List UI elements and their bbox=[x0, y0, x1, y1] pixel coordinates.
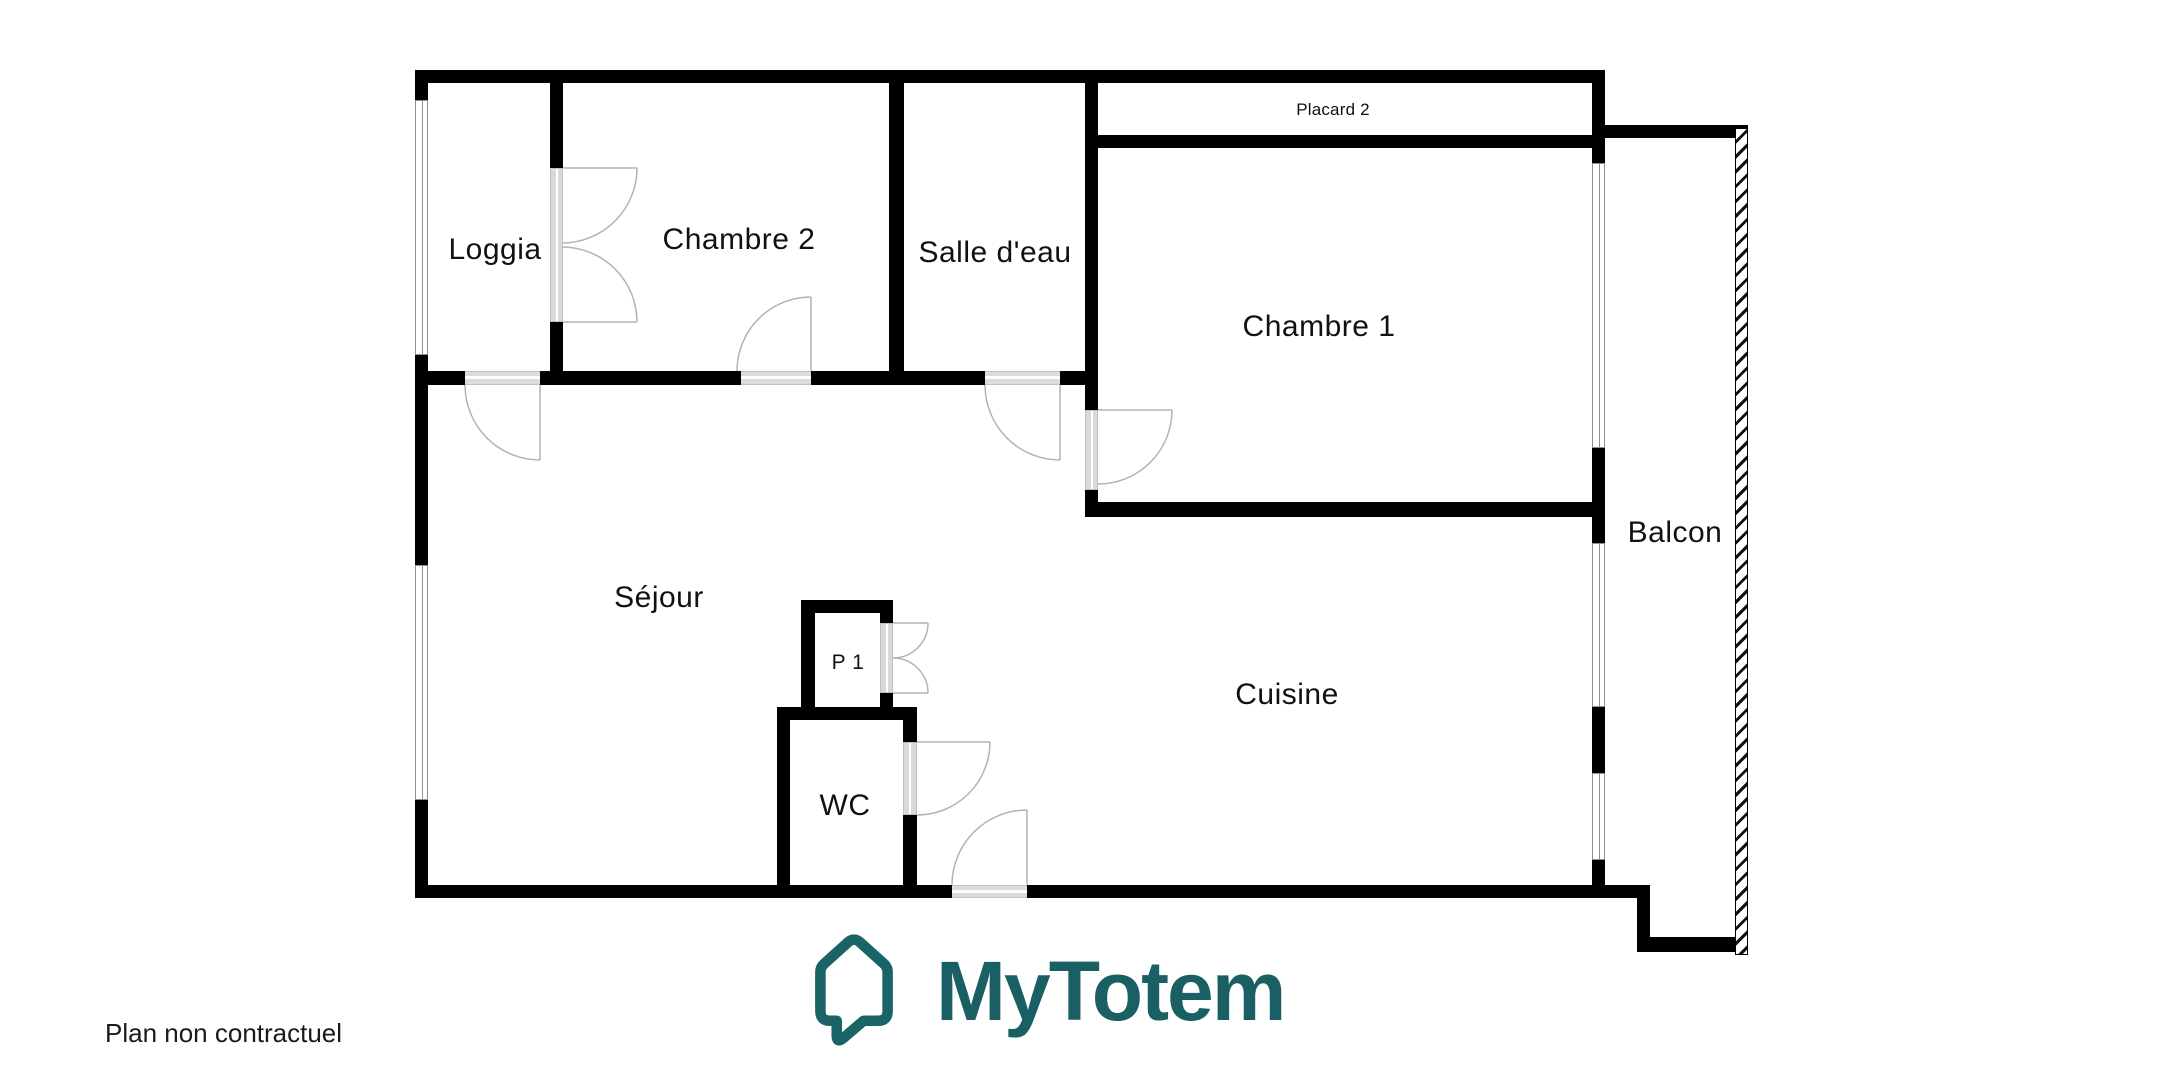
room-label-cuisine: Cuisine bbox=[1235, 678, 1339, 712]
wall-bottom bbox=[415, 885, 1650, 898]
room-label-salle-deau: Salle d'eau bbox=[918, 236, 1071, 270]
room-label-balcon: Balcon bbox=[1628, 516, 1723, 550]
wall-balcony-top bbox=[1603, 125, 1748, 138]
door-strip-p1 bbox=[880, 623, 893, 693]
wall-balcony-step bbox=[1637, 885, 1650, 952]
opening-loggia-sejour bbox=[465, 371, 540, 385]
door-strip-loggia-chambre2 bbox=[550, 168, 563, 322]
house-speech-bubble-icon bbox=[806, 928, 902, 1054]
room-label-chambre1: Chambre 1 bbox=[1243, 310, 1396, 344]
room-label-chambre2: Chambre 2 bbox=[663, 223, 816, 257]
window-sejour-left bbox=[415, 565, 428, 800]
wall-chambre2-sde bbox=[889, 70, 904, 385]
room-label-wc: WC bbox=[820, 789, 871, 823]
room-label-sejour: Séjour bbox=[614, 581, 704, 615]
mytotem-wordmark: MyTotem bbox=[936, 949, 1284, 1033]
room-label-placard2: Placard 2 bbox=[1296, 100, 1370, 120]
wall-wc-top bbox=[777, 707, 917, 720]
door-strip-wc bbox=[903, 742, 917, 815]
door-strip-chambre1 bbox=[1085, 410, 1098, 490]
wall-chambre1-bottom bbox=[1085, 502, 1605, 517]
mytotem-logo: MyTotem bbox=[806, 928, 1284, 1054]
window-chambre1-right bbox=[1592, 163, 1605, 448]
room-label-loggia: Loggia bbox=[448, 233, 541, 267]
window-loggia-left bbox=[415, 100, 428, 355]
wall-balcony-bottom bbox=[1637, 937, 1748, 952]
opening-entrance bbox=[952, 885, 1027, 898]
wall-wc-left bbox=[777, 707, 790, 898]
wall-p1-left bbox=[801, 600, 815, 720]
balcony-railing-hatch bbox=[1735, 128, 1748, 955]
door-swing-arcs bbox=[0, 0, 2160, 1080]
disclaimer-text: Plan non contractuel bbox=[105, 1018, 342, 1049]
wall-placard-bottom bbox=[1085, 135, 1603, 148]
floor-plan-canvas: Loggia Chambre 2 Salle d'eau Placard 2 C… bbox=[0, 0, 2160, 1080]
window-cuisine-right-upper bbox=[1592, 543, 1605, 707]
wall-top bbox=[415, 70, 1603, 83]
window-cuisine-right-lower bbox=[1592, 773, 1605, 860]
opening-sde-hall bbox=[985, 371, 1060, 385]
room-label-p1: P 1 bbox=[832, 651, 865, 675]
opening-chambre2-hall bbox=[741, 371, 811, 385]
